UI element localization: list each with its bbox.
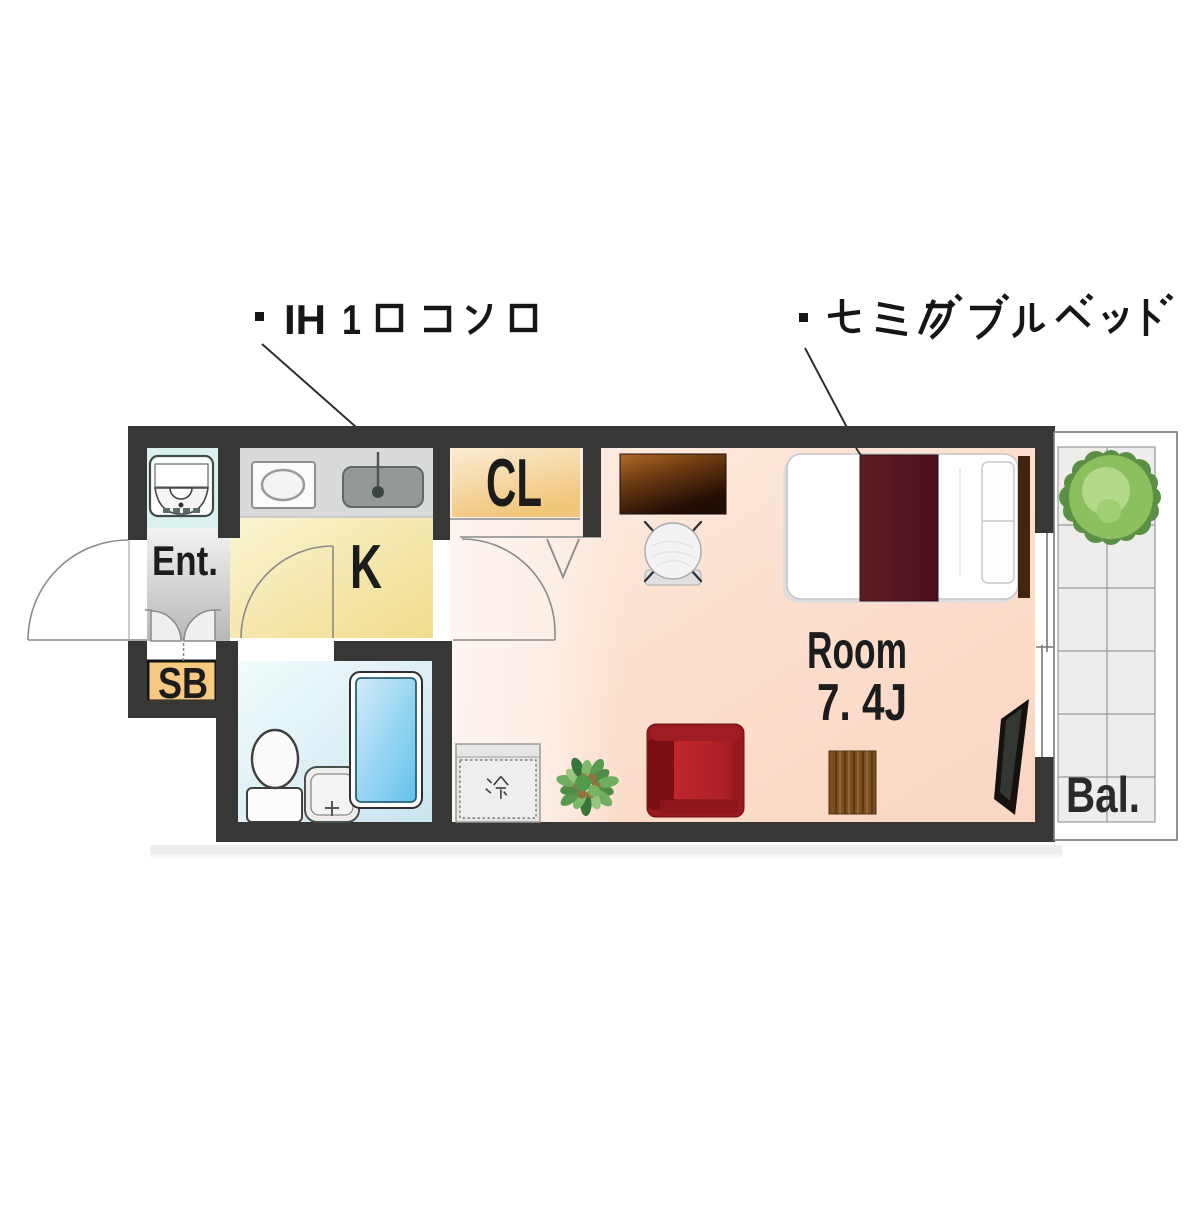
svg-text:Bal.: Bal. bbox=[1066, 767, 1140, 823]
svg-text:IH: IH bbox=[284, 296, 326, 343]
svg-text:CL: CL bbox=[486, 445, 542, 521]
svg-text:Room: Room bbox=[807, 622, 907, 680]
svg-text:7. 4J: 7. 4J bbox=[817, 674, 907, 732]
svg-text:Ent.: Ent. bbox=[152, 537, 218, 584]
svg-text:K: K bbox=[350, 533, 382, 602]
svg-text:1: 1 bbox=[342, 296, 361, 343]
svg-text:SB: SB bbox=[158, 659, 208, 708]
